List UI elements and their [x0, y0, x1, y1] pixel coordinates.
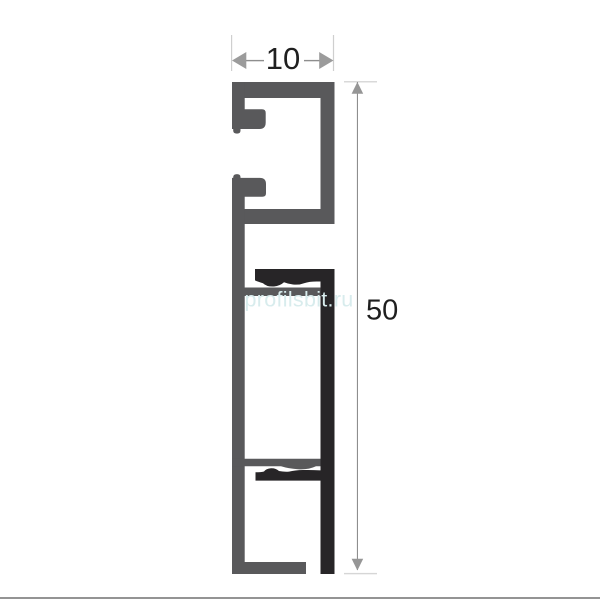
svg-text:profilsbit.ru: profilsbit.ru [245, 287, 354, 311]
svg-text:10: 10 [266, 41, 300, 76]
svg-text:50: 50 [366, 295, 398, 327]
